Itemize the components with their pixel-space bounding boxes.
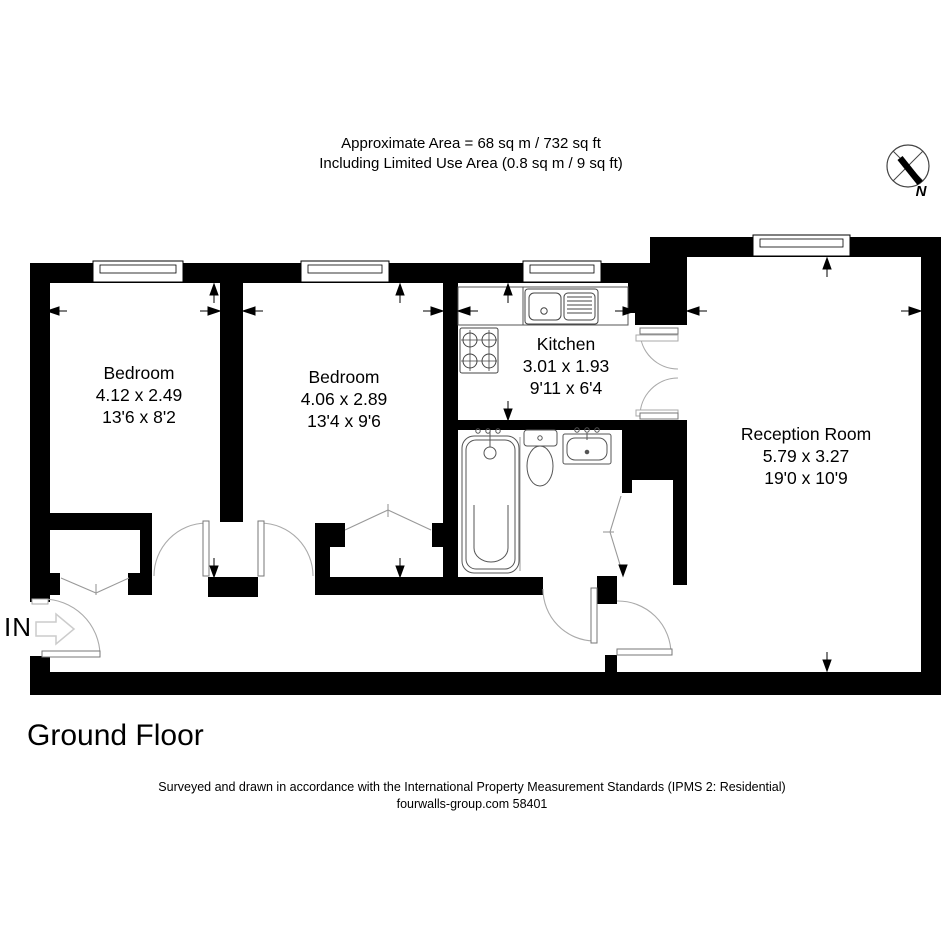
- room-size-metric: 5.79 x 3.27: [741, 445, 871, 467]
- bathroom-door-leaf: [591, 588, 597, 643]
- floor-title: Ground Floor: [27, 719, 204, 753]
- room-size-imperial: 9'11 x 6'4: [523, 377, 610, 399]
- window-bedroom-1: [93, 261, 183, 282]
- room-name: Reception Room: [741, 423, 871, 445]
- hall-closet-doors: [61, 578, 129, 593]
- bedroom2-door-arc: [261, 523, 313, 576]
- floorplan-page: Approximate Area = 68 sq m / 732 sq ft I…: [0, 0, 945, 945]
- survey-standards-text: Surveyed and drawn in accordance with th…: [158, 780, 785, 794]
- room-name: Kitchen: [523, 333, 610, 355]
- stove-hob: [460, 328, 498, 373]
- compass-north-label: N: [916, 183, 927, 200]
- kitchen-doubledoor-bottom-leaf: [640, 413, 678, 419]
- bedroom2-door-leaf: [258, 521, 264, 576]
- reception-door-leaf: [617, 649, 672, 655]
- limited-use-area-text: Including Limited Use Area (0.8 sq m / 9…: [319, 155, 622, 172]
- entry-direction-arrow-icon: [36, 614, 74, 644]
- reception-door-arc: [617, 601, 671, 654]
- kitchen-sink: [525, 289, 598, 324]
- bedroom1-door-arc: [154, 523, 206, 576]
- bathroom-door-arc: [543, 589, 594, 641]
- room-size-metric: 4.12 x 2.49: [96, 384, 183, 406]
- room-size-imperial: 13'6 x 8'2: [96, 406, 183, 428]
- room-size-imperial: 19'0 x 10'9: [741, 467, 871, 489]
- toilet: [524, 430, 557, 486]
- room-label-reception: Reception Room 5.79 x 3.27 19'0 x 10'9: [741, 423, 871, 489]
- approximate-area-text: Approximate Area = 68 sq m / 732 sq ft: [341, 135, 601, 152]
- window-bedroom-2: [301, 261, 389, 282]
- window-kitchen: [523, 261, 601, 282]
- room-label-bedroom-1: Bedroom 4.12 x 2.49 13'6 x 8'2: [96, 362, 183, 428]
- entry-door-leaf: [42, 651, 100, 657]
- kitchen-doubledoor-top-leaf: [640, 328, 678, 334]
- room-label-kitchen: Kitchen 3.01 x 1.93 9'11 x 6'4: [523, 333, 610, 399]
- window-reception: [753, 235, 850, 256]
- bedroom1-door-leaf: [203, 521, 209, 576]
- room-label-bedroom-2: Bedroom 4.06 x 2.89 13'4 x 9'6: [301, 366, 388, 432]
- room-name: Bedroom: [301, 366, 388, 388]
- entry-threshold: [32, 599, 48, 604]
- room-size-imperial: 13'4 x 9'6: [301, 410, 388, 432]
- compass-icon: [887, 145, 929, 187]
- surveyor-reference-text: fourwalls-group.com 58401: [397, 797, 548, 811]
- bathtub: [462, 429, 520, 573]
- room-size-metric: 4.06 x 2.89: [301, 388, 388, 410]
- basin: [563, 428, 611, 464]
- room-size-metric: 3.01 x 1.93: [523, 355, 610, 377]
- bathroom-fixtures: [462, 428, 611, 573]
- entrance-label: IN: [4, 612, 32, 643]
- room-name: Bedroom: [96, 362, 183, 384]
